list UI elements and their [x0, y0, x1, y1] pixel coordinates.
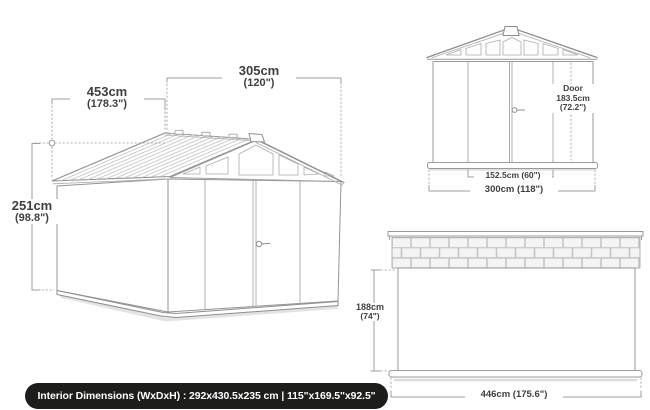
door-handle	[256, 241, 261, 246]
height-dimension-label: 251cm (98.8")	[2, 199, 62, 224]
front-base-skid	[428, 163, 598, 169]
height-cm: 251cm	[4, 199, 60, 213]
front-door-handle	[512, 108, 517, 113]
side-depth-label: 446cm (175.6")	[465, 390, 563, 400]
width-dimension-label: 305cm (120")	[222, 64, 296, 89]
side-height-label: 188cm (74")	[345, 303, 395, 321]
dim-node-circle	[49, 140, 55, 146]
door-height-label: Door 183.5cm (72.2")	[550, 84, 596, 113]
width-cm: 305cm	[224, 64, 294, 78]
side-elevation-drawing	[388, 232, 643, 381]
door-inches: (72.2")	[552, 103, 594, 113]
depth-dimension-label: 453cm (178.3")	[70, 85, 144, 110]
front-width-label: 300cm (118")	[470, 185, 558, 195]
perspective-shed-drawing	[52, 131, 344, 320]
roof-finial	[249, 134, 265, 143]
door-width-label: 152.5cm (60")	[474, 171, 552, 180]
front-roof-finial	[503, 27, 519, 36]
depth-inches: (178.3")	[72, 99, 142, 111]
side-height-inches: (74")	[347, 312, 393, 321]
interior-dimensions-text: Interior Dimensions (WxDxH) : 292x430.5x…	[37, 390, 375, 402]
shed-dimension-diagram: 453cm (178.3") 305cm (120") 251cm (98.8"…	[0, 0, 650, 410]
side-shingle-band	[392, 238, 640, 269]
depth-cm: 453cm	[72, 85, 142, 99]
height-inches: (98.8")	[4, 213, 60, 225]
interior-dimensions-bar: Interior Dimensions (WxDxH) : 292x430.5x…	[25, 383, 388, 409]
diagram-line-art	[0, 0, 650, 410]
side-base-skid	[389, 371, 642, 378]
width-inches: (120")	[224, 78, 294, 90]
